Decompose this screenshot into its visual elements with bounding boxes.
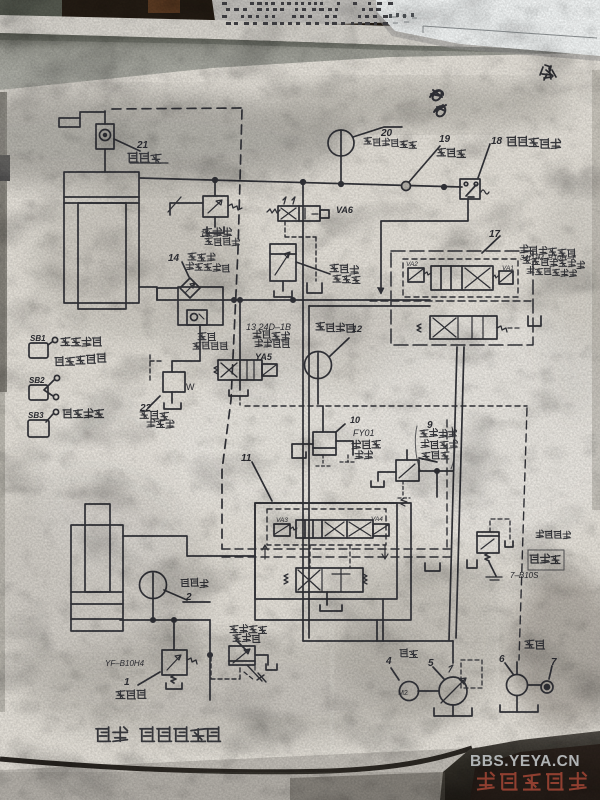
svg-text:BBS.YEYA.CN: BBS.YEYA.CN [470, 753, 580, 770]
